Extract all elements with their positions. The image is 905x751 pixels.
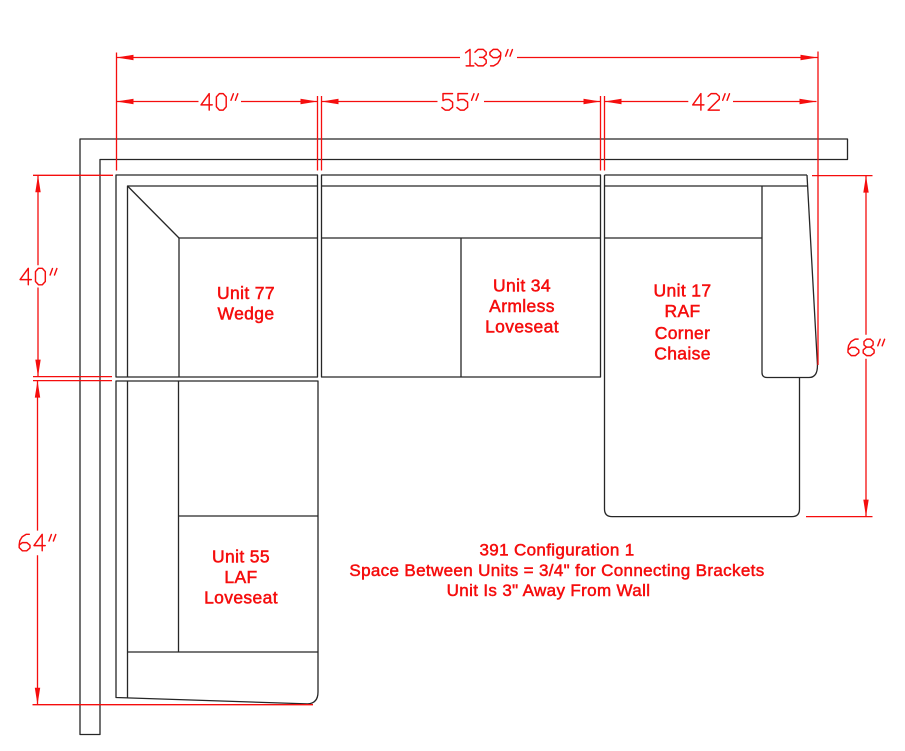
svg-text:LAF: LAF (224, 567, 257, 587)
svg-text:Loveseat: Loveseat (485, 317, 559, 337)
svg-text:RAF: RAF (664, 301, 700, 321)
svg-text:391 Configuration 1: 391 Configuration 1 (479, 541, 634, 560)
svg-text:Armless: Armless (489, 296, 555, 316)
svg-text:Unit 55: Unit 55 (212, 547, 270, 567)
svg-text:Loveseat: Loveseat (204, 588, 278, 608)
svg-text:Chaise: Chaise (654, 344, 711, 364)
svg-text:Corner: Corner (655, 323, 711, 343)
svg-text:Unit 17: Unit 17 (654, 281, 712, 301)
svg-text:Unit Is 3" Away From Wall: Unit Is 3" Away From Wall (447, 581, 651, 600)
svg-text:Unit 34: Unit 34 (493, 276, 551, 296)
svg-text:Wedge: Wedge (218, 304, 275, 324)
svg-text:Unit 77: Unit 77 (217, 283, 275, 303)
svg-text:Space Between Units = 3/4" for: Space Between Units = 3/4" for Connectin… (349, 561, 764, 580)
